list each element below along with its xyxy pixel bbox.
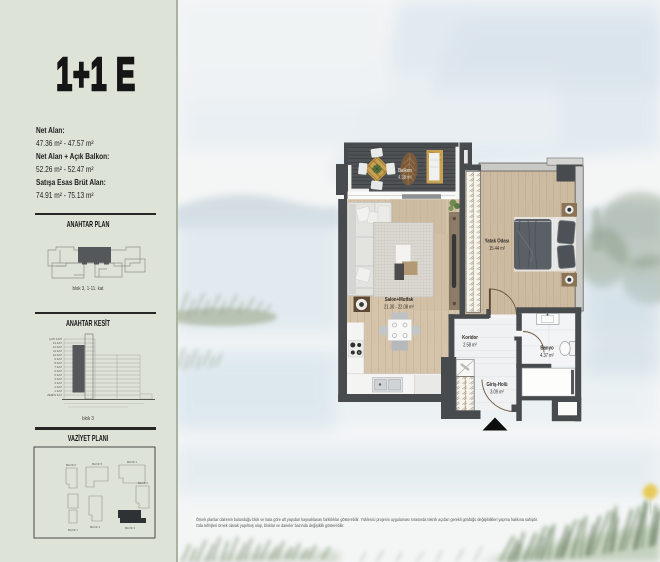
svg-text:4.38 m²: 4.38 m² xyxy=(398,175,412,181)
svg-text:3.09 m²: 3.09 m² xyxy=(490,389,504,395)
svg-text:15.44 m²: 15.44 m² xyxy=(489,246,505,252)
svg-text:Banyo: Banyo xyxy=(540,345,553,352)
svg-text:BLOK 5: BLOK 5 xyxy=(92,462,102,466)
svg-text:Koridor: Koridor xyxy=(462,335,478,342)
svg-text:Balkon: Balkon xyxy=(398,168,412,175)
svg-text:BLOK 6: BLOK 6 xyxy=(66,463,76,467)
svg-text:BLOK 7: BLOK 7 xyxy=(68,528,78,532)
svg-text:Salon+Mutfak: Salon+Mutfak xyxy=(385,297,414,304)
svg-text:BLOK 1: BLOK 1 xyxy=(127,460,137,464)
svg-text:4.37 m²: 4.37 m² xyxy=(540,353,554,359)
svg-text:BLOK 3: BLOK 3 xyxy=(125,526,135,530)
svg-text:BLOK 4: BLOK 4 xyxy=(90,525,100,529)
svg-text:Yatak Odası: Yatak Odası xyxy=(485,238,510,245)
svg-text:BLOK 2: BLOK 2 xyxy=(138,481,148,485)
svg-text:21.30 - 22.08 m²: 21.30 - 22.08 m² xyxy=(384,304,414,310)
svg-text:2.58 m²: 2.58 m² xyxy=(463,342,477,348)
svg-text:Giriş-Holü: Giriş-Holü xyxy=(486,382,507,389)
